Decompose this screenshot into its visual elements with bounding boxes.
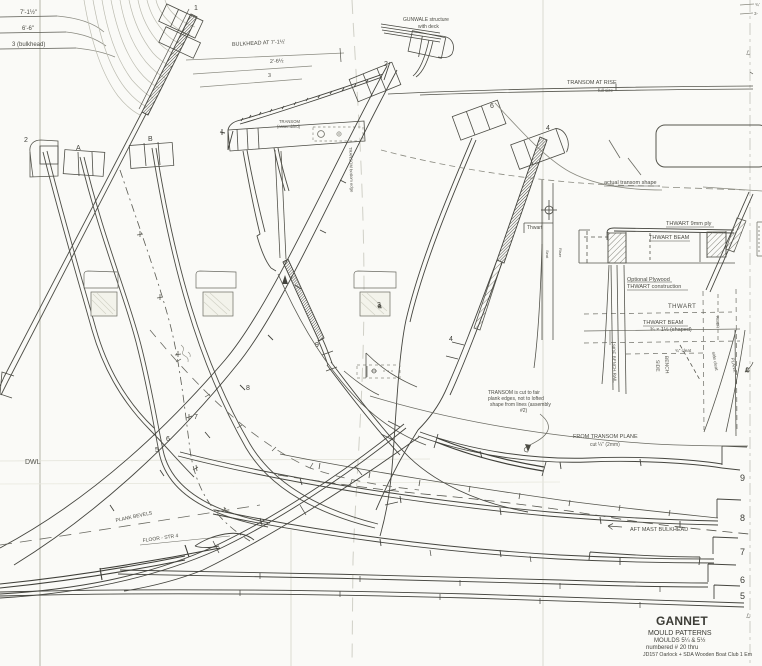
svg-text:Riser: Riser [558, 248, 563, 258]
svg-text:#2): #2) [520, 408, 528, 414]
svg-text:6: 6 [490, 103, 494, 110]
svg-text:BENCH: BENCH [663, 356, 670, 374]
svg-text:GANNET: GANNET [656, 614, 708, 628]
svg-text:Seat: Seat [545, 250, 550, 259]
svg-text:(assembled): (assembled) [277, 124, 301, 129]
svg-text:8: 8 [740, 513, 745, 523]
svg-text:7'-1½": 7'-1½" [20, 9, 37, 16]
svg-text:ℒ: ℒ [746, 50, 751, 57]
svg-text:with deck: with deck [418, 24, 439, 30]
svg-text:THWART BEAM: THWART BEAM [649, 235, 690, 241]
svg-text:DWL: DWL [25, 459, 41, 466]
svg-text:Thwart: Thwart [527, 225, 543, 231]
svg-text:6: 6 [740, 575, 745, 585]
svg-text:¾" cleat: ¾" cleat [675, 348, 692, 353]
svg-text:5: 5 [155, 447, 159, 454]
svg-text:3: 3 [268, 73, 271, 79]
svg-text:AFT MAST BULKHEAD: AFT MAST BULKHEAD [630, 527, 688, 533]
svg-text:full size: full size [598, 88, 614, 93]
svg-text:ℒ: ℒ [745, 367, 750, 374]
svg-text:7: 7 [194, 414, 198, 421]
svg-text:SIDE: SIDE [654, 360, 660, 373]
svg-text:7: 7 [740, 547, 745, 557]
svg-text:FROM TRANSOM PLANE: FROM TRANSOM PLANE [573, 434, 638, 440]
svg-text:MOULDS 5¼ & 5½: MOULDS 5¼ & 5½ [654, 637, 705, 644]
svg-text:6: 6 [166, 436, 170, 443]
svg-text:actual transom shape: actual transom shape [604, 180, 657, 186]
svg-text:RISER: RISER [715, 316, 720, 329]
svg-text:MOULD PATTERNS: MOULD PATTERNS [648, 630, 712, 637]
svg-text:4: 4 [449, 336, 453, 343]
svg-text:2'-6½: 2'-6½ [270, 57, 284, 65]
svg-text:3: 3 [377, 302, 381, 309]
svg-text:¾': ¾' [755, 2, 760, 7]
svg-text:GUNWALE structure: GUNWALE structure [403, 17, 449, 23]
svg-text:8: 8 [246, 385, 250, 392]
svg-text:6'-6": 6'-6" [22, 26, 34, 32]
svg-text:9: 9 [740, 473, 745, 483]
svg-text:3-: 3- [754, 11, 759, 16]
svg-text:4: 4 [546, 125, 550, 132]
svg-text:B: B [148, 136, 153, 143]
svg-text:1: 1 [194, 5, 198, 12]
svg-text:JD157 Oarlock + SDA Wooden Boa: JD157 Oarlock + SDA Wooden Boat Club 1 E… [643, 652, 752, 658]
svg-text:THWART construction: THWART construction [627, 284, 681, 290]
svg-text:A: A [76, 145, 81, 152]
svg-text:cut ¼" (2mm): cut ¼" (2mm) [590, 442, 620, 448]
svg-text:3 (bulkhead): 3 (bulkhead) [12, 42, 45, 48]
svg-text:THWART BEAM: THWART BEAM [643, 320, 684, 326]
svg-text:THWART: THWART [668, 304, 696, 310]
svg-text:ℒ: ℒ [746, 613, 751, 620]
svg-text:THWART 9mm ply: THWART 9mm ply [666, 221, 712, 227]
svg-text:numbered # 20 thru: numbered # 20 thru [646, 645, 698, 651]
svg-text:5: 5 [740, 591, 745, 601]
svg-text:TRANSOM AT RISE: TRANSOM AT RISE [567, 80, 617, 86]
svg-text:2: 2 [24, 137, 28, 144]
